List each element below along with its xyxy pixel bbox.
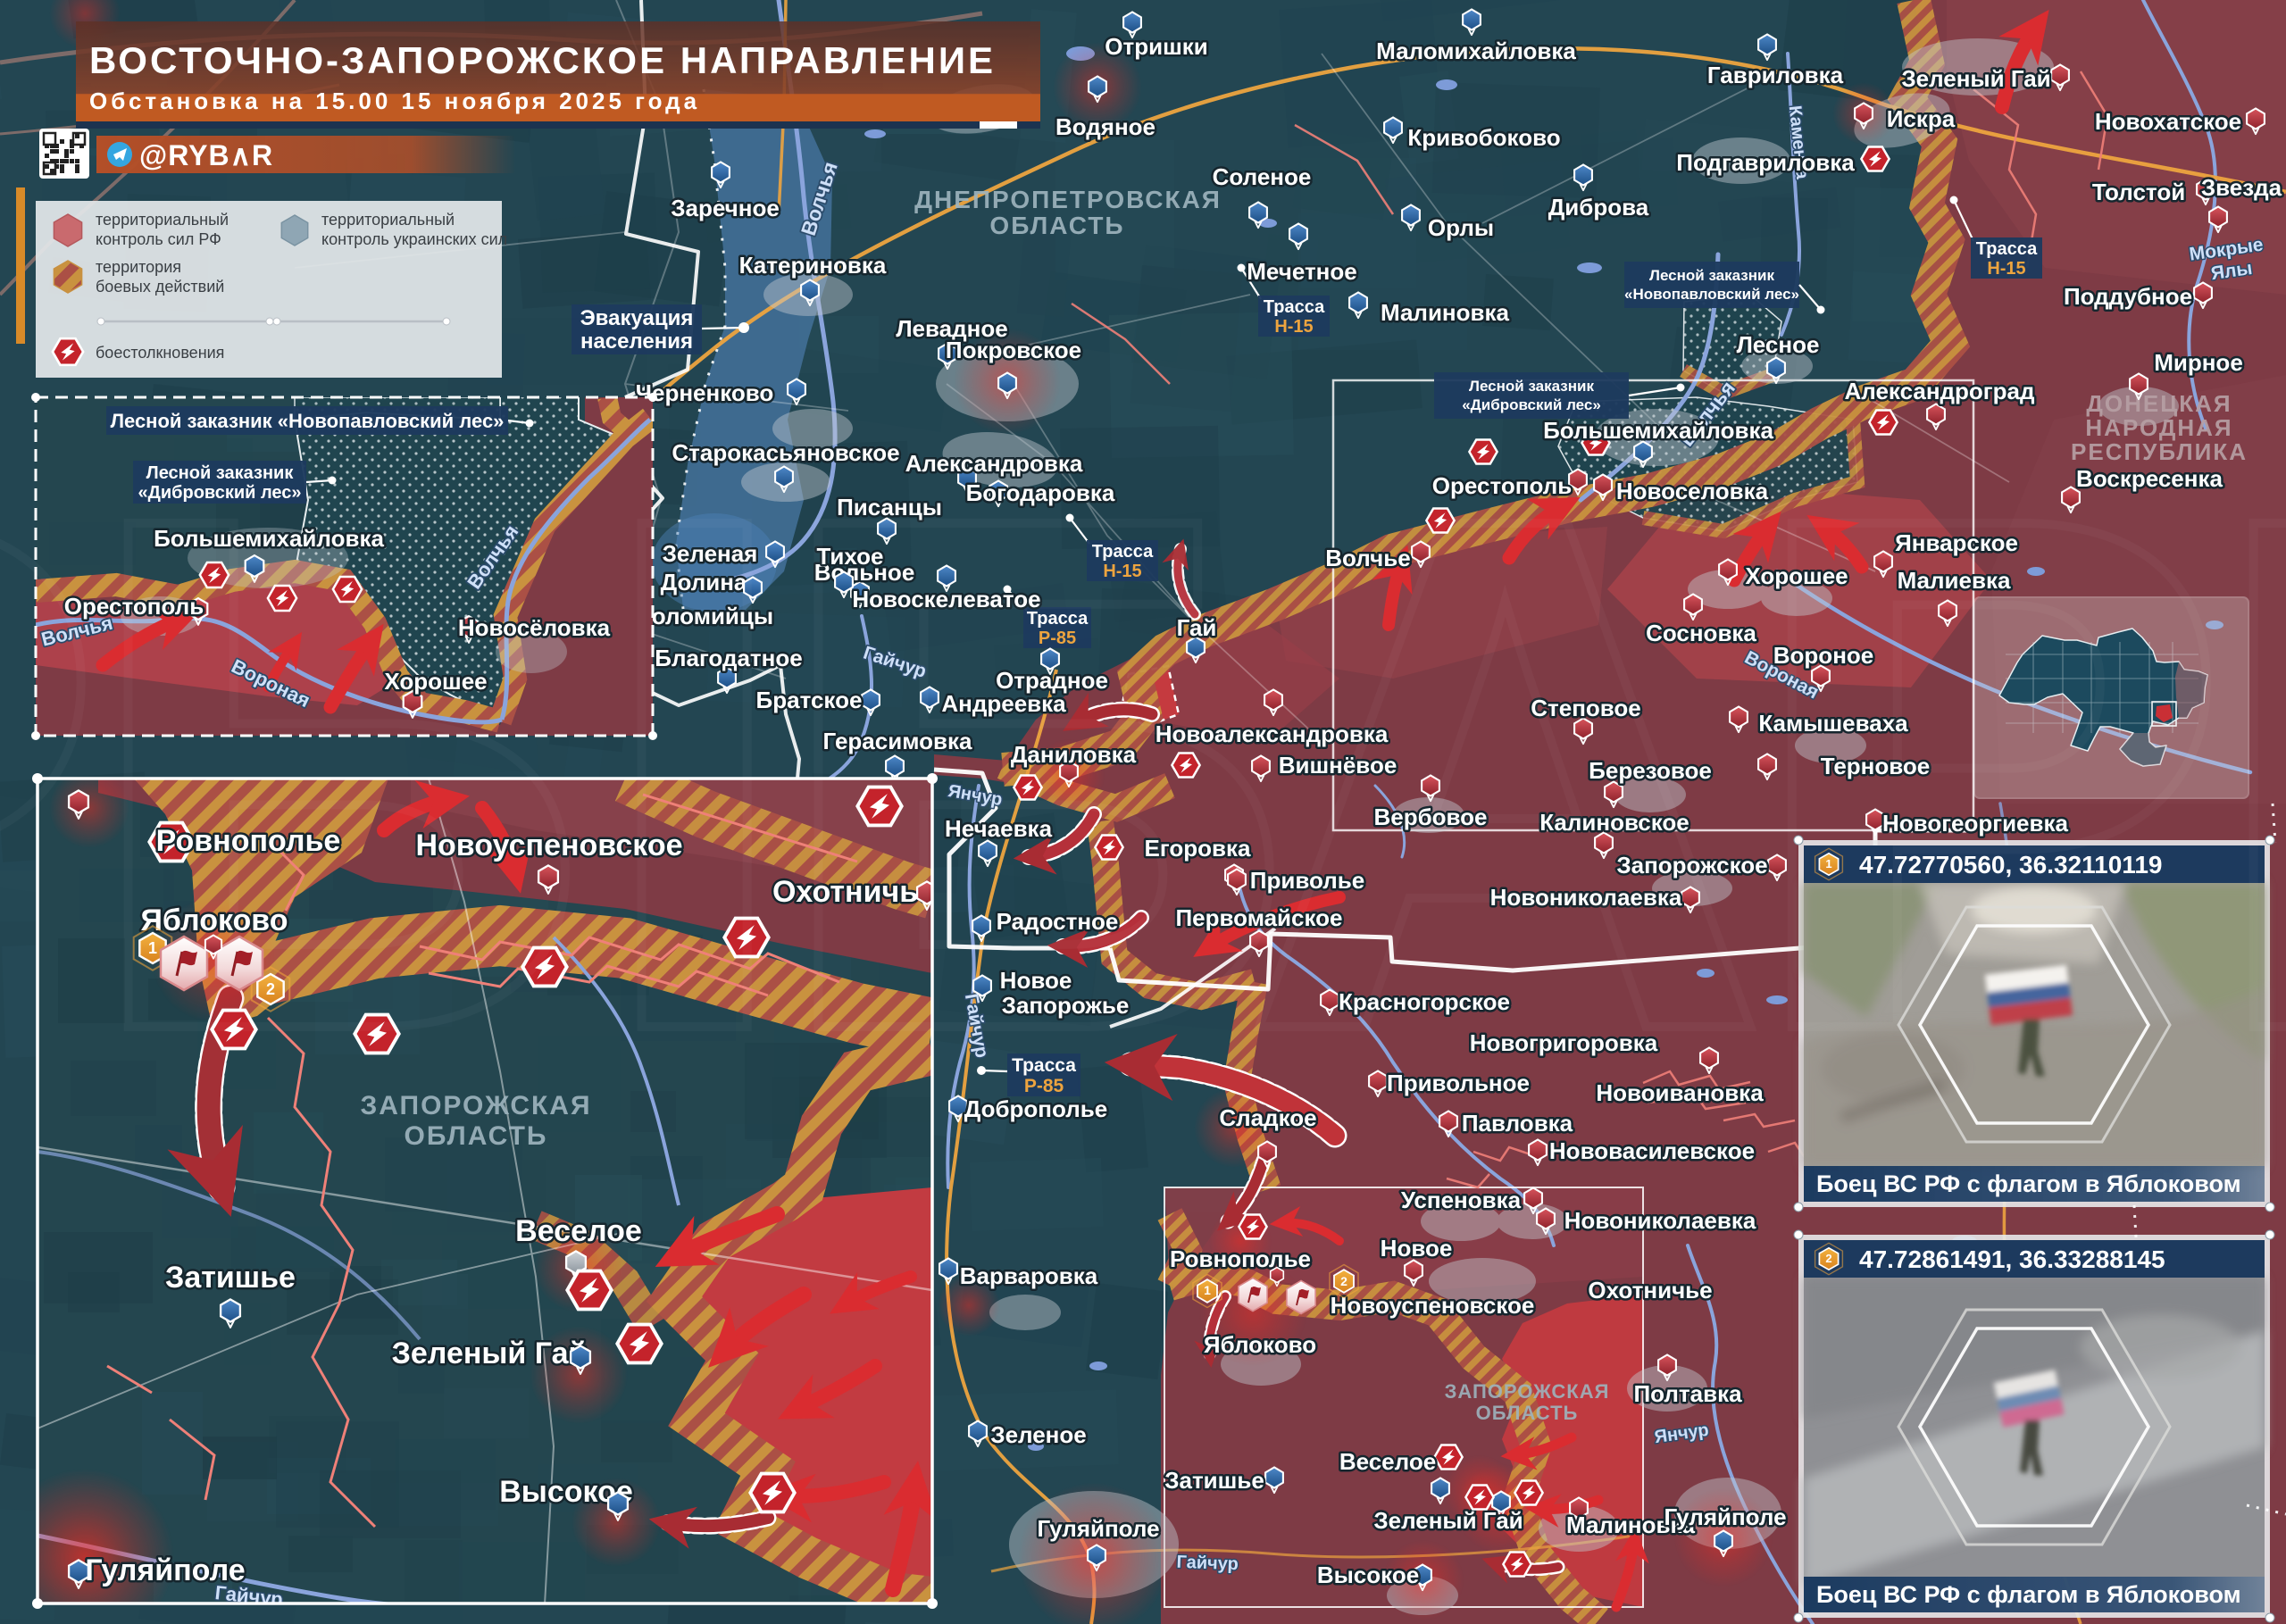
svg-text:Варваровка: Варваровка [960,1262,1098,1289]
svg-text:Веселое: Веселое [1339,1448,1436,1475]
svg-text:Обстановка на 15.00 15 ноября: Обстановка на 15.00 15 ноября 2025 года [89,87,700,114]
svg-text:Искра: Искра [1887,105,1956,132]
svg-text:Трасса: Трасса [1976,239,2038,259]
svg-text:Толстой: Толстой [2092,179,2185,205]
svg-text:Заречное: Заречное [671,195,780,221]
svg-text:Звезда: Звезда [2201,174,2282,201]
svg-text:Гуляйполе: Гуляйполе [1037,1515,1159,1542]
svg-text:@RYB∧R: @RYB∧R [139,139,273,171]
svg-text:Новоуспеновское: Новоуспеновское [1331,1292,1535,1319]
svg-text:2: 2 [1825,1252,1831,1265]
svg-text:Новое: Новое [1381,1235,1453,1262]
svg-text:1: 1 [1204,1283,1211,1297]
svg-text:2: 2 [1340,1274,1347,1288]
svg-text:Охотничье: Охотничье [1588,1277,1712,1303]
svg-text:Диброва: Диброва [1548,194,1649,221]
svg-text:ОБЛАСТЬ: ОБЛАСТЬ [989,212,1124,239]
svg-text:Боец ВС РФ с флагом в Яблоково: Боец ВС РФ с флагом в Яблоковом [1816,1581,2241,1608]
svg-text:ВОСТОЧНО-ЗАПОРОЖСКОЕ НАПРАВЛЕН: ВОСТОЧНО-ЗАПОРОЖСКОЕ НАПРАВЛЕНИЕ [89,39,996,81]
svg-text:Затишье: Затишье [165,1261,296,1295]
svg-text:территориальный: территориальный [96,211,229,229]
svg-text:населения: населения [580,329,693,354]
svg-text:Новониколаевка: Новониколаевка [1564,1207,1756,1234]
svg-text:Поддубное: Поддубное [2064,283,2192,310]
svg-text:Гуляйполе: Гуляйполе [1664,1503,1786,1530]
svg-text:Малиновка: Малиновка [1381,299,1510,326]
svg-text:ДНЕПРОПЕТРОВСКАЯ: ДНЕПРОПЕТРОВСКАЯ [914,186,1222,213]
svg-text:Полтавка: Полтавка [1633,1380,1742,1407]
svg-text:Подгавриловка: Подгавриловка [1676,149,1855,176]
svg-text:боестолкновения: боестолкновения [96,344,224,362]
svg-text:Новохатское: Новохатское [2095,108,2241,135]
svg-text:Катериновка: Катериновка [739,252,887,279]
svg-text:Затишье: Затишье [1164,1467,1264,1494]
svg-text:Эвакуация: Эвакуация [580,306,694,330]
svg-text:Ровнополье: Ровнополье [1170,1245,1311,1272]
svg-text:Н-15: Н-15 [1274,317,1313,337]
svg-text:Веселое: Веселое [515,1214,642,1248]
svg-text:Трасса: Трасса [1264,297,1325,317]
svg-text:Кривобоково: Кривобоково [1407,124,1560,151]
svg-text:РЫБАРЬ: РЫБАРЬ [0,364,2286,1182]
svg-text:Маломихайловка: Маломихайловка [1376,37,1576,64]
svg-text:Н-15: Н-15 [1987,259,2025,279]
svg-text:ОБЛАСТЬ: ОБЛАСТЬ [1476,1402,1579,1424]
svg-text:Зеленый Гай: Зеленый Гай [1901,65,2050,92]
svg-text:контроль сил РФ: контроль сил РФ [96,230,221,248]
svg-text:Лесной заказник: Лесной заказник [1649,267,1774,284]
svg-text:территория: территория [96,258,181,276]
svg-text:Гайчур: Гайчур [1176,1553,1239,1574]
svg-text:ЗАПОРОЖСКАЯ: ЗАПОРОЖСКАЯ [1445,1380,1610,1403]
svg-text:Зеленое: Зеленое [990,1421,1086,1448]
svg-text:Зеленый Гай: Зеленый Гай [392,1337,588,1370]
svg-text:Покровское: Покровское [946,337,1081,363]
svg-text:Отришки: Отришки [1105,33,1208,60]
svg-text:Яблоково: Яблоково [1204,1331,1316,1358]
svg-text:Мечетное: Мечетное [1247,258,1356,285]
svg-text:Успеновка: Успеновка [1401,1187,1522,1213]
svg-text:Зеленый Гай: Зеленый Гай [1373,1507,1523,1534]
svg-text:Гавриловка: Гавриловка [1707,62,1844,88]
svg-text:Водяное: Водяное [1055,113,1156,140]
svg-text:боевых действий: боевых действий [96,278,224,296]
svg-text:Соленое: Соленое [1213,163,1312,190]
svg-text:контроль украинских сил: контроль украинских сил [321,230,507,248]
svg-text:47.72861491, 36.33288145: 47.72861491, 36.33288145 [1859,1245,2165,1273]
svg-text:Орлы: Орлы [1428,214,1494,241]
svg-text:«Новопавловский лес»: «Новопавловский лес» [1624,286,1799,303]
svg-text:Лесное: Лесное [1737,331,1820,358]
svg-text:Высокое: Высокое [1317,1562,1419,1588]
svg-text:территориальный: территориальный [321,211,455,229]
